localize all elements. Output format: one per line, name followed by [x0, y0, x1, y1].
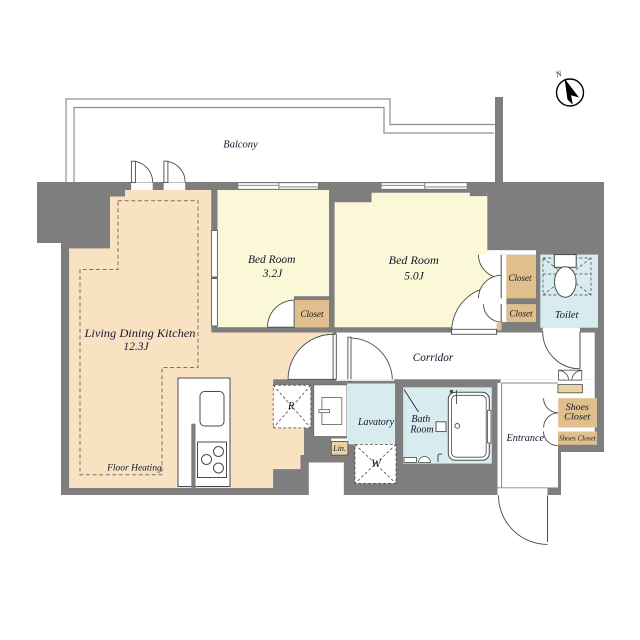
svg-text:Lin.: Lin.	[332, 444, 346, 453]
svg-text:Entrance: Entrance	[505, 433, 544, 444]
svg-text:R: R	[287, 401, 294, 412]
svg-text:Living Dining Kitchen: Living Dining Kitchen	[83, 326, 195, 340]
svg-text:Bath: Bath	[411, 414, 430, 425]
svg-text:Shoes: Shoes	[566, 403, 589, 413]
svg-text:3.2J: 3.2J	[262, 268, 283, 280]
svg-text:Bed Room: Bed Room	[248, 252, 296, 266]
svg-text:Corridor: Corridor	[413, 352, 454, 364]
svg-text:12.3J: 12.3J	[123, 341, 149, 353]
svg-text:Balcony: Balcony	[223, 140, 258, 151]
svg-text:5.0J: 5.0J	[404, 271, 424, 283]
svg-text:Closet: Closet	[508, 273, 532, 283]
svg-text:Closet: Closet	[300, 309, 324, 319]
svg-text:W: W	[371, 458, 382, 470]
svg-text:Floor Heating: Floor Heating	[106, 464, 162, 474]
svg-text:Closet: Closet	[509, 309, 533, 319]
svg-text:Lavatory: Lavatory	[357, 417, 395, 428]
svg-text:Bed Room: Bed Room	[389, 253, 439, 267]
svg-text:Closet: Closet	[564, 413, 591, 423]
svg-text:Room: Room	[409, 425, 433, 436]
svg-text:Shoes Closet: Shoes Closet	[559, 434, 596, 443]
svg-text:Toilet: Toilet	[555, 310, 580, 321]
